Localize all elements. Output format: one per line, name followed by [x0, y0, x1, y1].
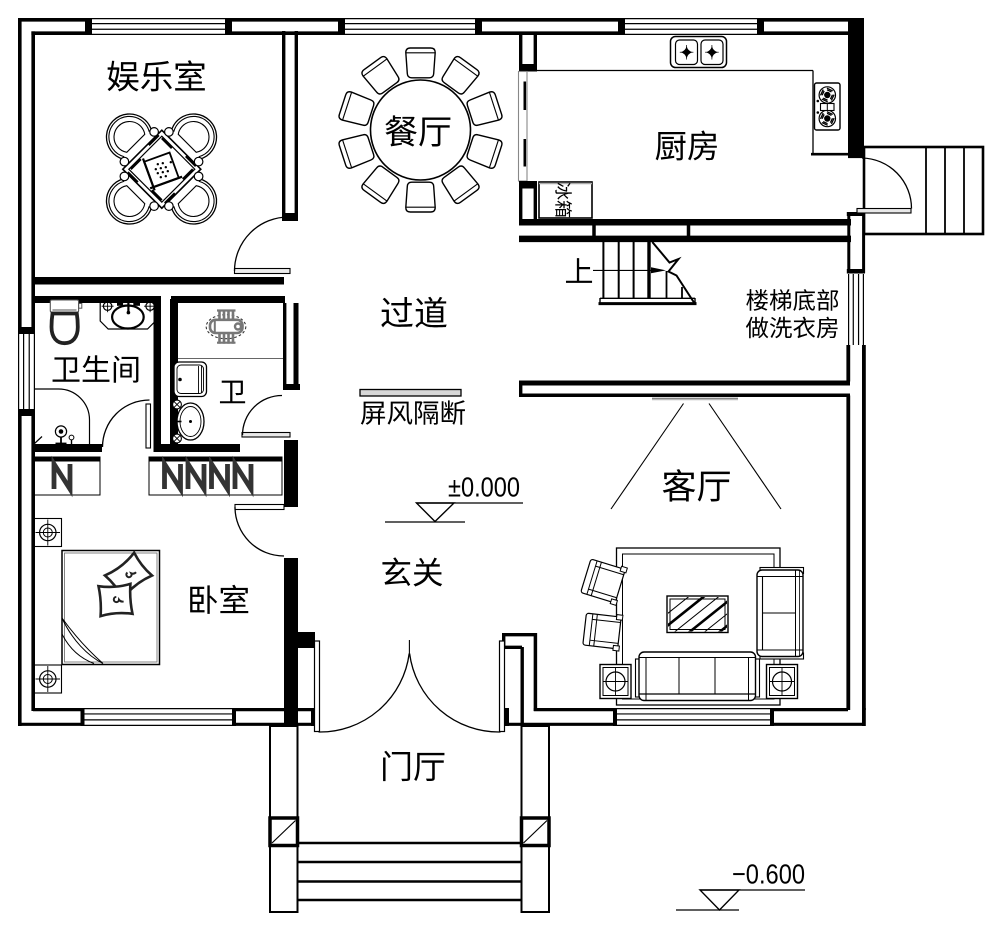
svg-text:−0.600: −0.600: [732, 859, 805, 890]
svg-text:±0.000: ±0.000: [448, 472, 520, 503]
